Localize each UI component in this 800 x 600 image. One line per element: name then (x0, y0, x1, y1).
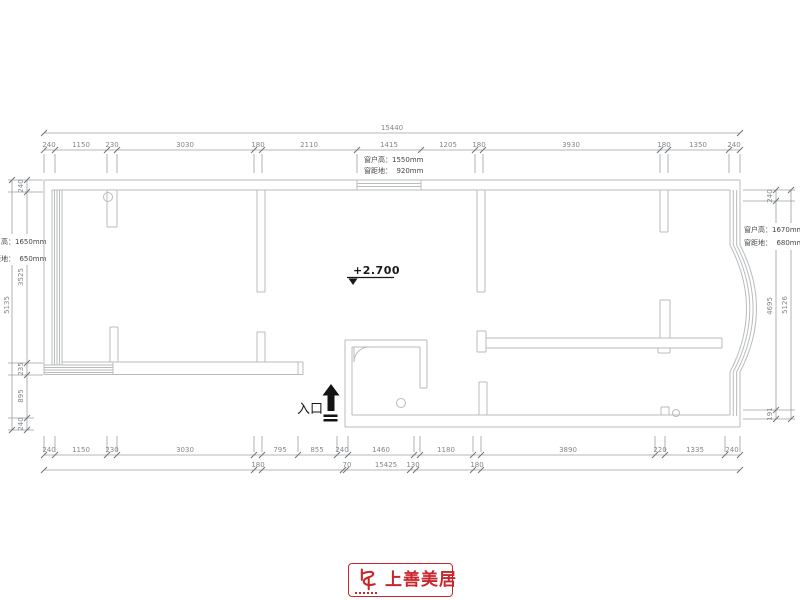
dim-label: 2110 (300, 141, 318, 149)
dim-label: 1335 (686, 446, 704, 454)
entrance-step-bar (324, 419, 338, 422)
logo-brand-name: 上善美居 (385, 572, 457, 589)
extension-lines-left (8, 180, 43, 430)
dim-label: 1460 (372, 446, 390, 454)
fixture-circle (104, 193, 113, 202)
partition-b (477, 190, 485, 292)
entrance-step-bar (324, 415, 338, 418)
dim-label: 240 (727, 141, 740, 149)
brand-logo: 上善美居 (348, 563, 453, 597)
door-swing-arc (354, 347, 369, 362)
dim-label: 130 (406, 461, 419, 469)
logo-monogram (355, 567, 379, 594)
dim-label: 235 (17, 362, 25, 375)
extension-lines-bottom (44, 436, 740, 452)
bay-window (730, 180, 757, 416)
dim-label: 180 (251, 461, 264, 469)
entrance-marker: 入口 (297, 384, 340, 422)
dim-label: 180 (472, 141, 485, 149)
window-note-top-height: 窗户高：1550mm (364, 155, 424, 164)
dim-label: 3890 (559, 446, 577, 454)
dim-label: 240 (335, 446, 348, 454)
dim-label: 240 (725, 446, 738, 454)
dim-label: 1180 (437, 446, 455, 454)
window-note-left-sill: 窗距地： 650mm (0, 254, 47, 263)
floor-plan-page: 15440 240 1150 230 3030 180 2110 1415 12… (0, 0, 800, 600)
dim-label: 1150 (72, 446, 90, 454)
dim-left-overall: 5135 (3, 296, 11, 314)
dim-label: 855 (310, 446, 323, 454)
dim-label: 795 (273, 446, 286, 454)
dim-label: 230 (105, 446, 118, 454)
middle-wall (477, 300, 722, 353)
top-window (357, 180, 421, 190)
dim-label: 230 (105, 141, 118, 149)
dim-top-overall: 15440 (381, 124, 403, 132)
walls (44, 180, 757, 427)
dim-label: 180 (251, 141, 264, 149)
dim-label: 1350 (689, 141, 707, 149)
dim-label: 70 (343, 461, 352, 469)
partition-a (257, 190, 265, 362)
bottom-right-stubs (479, 382, 669, 415)
elevation-marker: +2.700 (347, 264, 400, 285)
dim-label: 240 (17, 417, 25, 430)
dimension-lines (8, 130, 795, 473)
dim-label: 3030 (176, 141, 194, 149)
floor-plan-canvas: 15440 240 1150 230 3030 180 2110 1415 12… (0, 0, 800, 600)
dim-label: 895 (17, 389, 25, 402)
window-note-right-height: 窗户高：1670mm (744, 225, 800, 234)
entrance-arrow-icon (323, 384, 340, 411)
dim-label: 4695 (766, 297, 774, 315)
window-note-top-sill: 窗距地： 920mm (364, 166, 424, 175)
logo-s-icon (355, 567, 379, 591)
window-notes: 窗户高：1550mm 窗距地： 920mm 窗户高：1650mm 窗距地： 65… (0, 153, 800, 265)
dim-label: 1150 (72, 141, 90, 149)
elevation-label: +2.700 (353, 264, 400, 277)
elevation-triangle-icon (349, 279, 358, 286)
window-note-right-sill: 窗距地： 680mm (744, 238, 800, 247)
dim-right-overall: 5126 (781, 296, 789, 314)
dim-label: 220 (653, 446, 666, 454)
partition-c (660, 190, 668, 232)
logo-subtext (355, 592, 379, 594)
dim-label: 240 (42, 141, 55, 149)
dim-label: 3030 (176, 446, 194, 454)
dim-label: 1205 (439, 141, 457, 149)
fixture-circle (397, 399, 406, 408)
left-window (44, 190, 113, 375)
dim-label: 180 (657, 141, 670, 149)
dim-label: 180 (470, 461, 483, 469)
dim-label: 3525 (17, 268, 25, 286)
dim-label: 1415 (380, 141, 398, 149)
dim-label: 15425 (375, 461, 397, 469)
dim-label: 3930 (562, 141, 580, 149)
dim-label: 240 (42, 446, 55, 454)
entrance-label: 入口 (297, 402, 323, 417)
window-note-left-height: 窗户高：1650mm (0, 237, 47, 246)
dim-label: 191 (766, 407, 774, 420)
dim-label: 240 (17, 179, 25, 192)
dim-label: 240 (766, 189, 774, 202)
outer-walls (44, 180, 740, 427)
partition-stub-bottom-left (110, 327, 118, 362)
dimension-ticks (9, 130, 794, 473)
